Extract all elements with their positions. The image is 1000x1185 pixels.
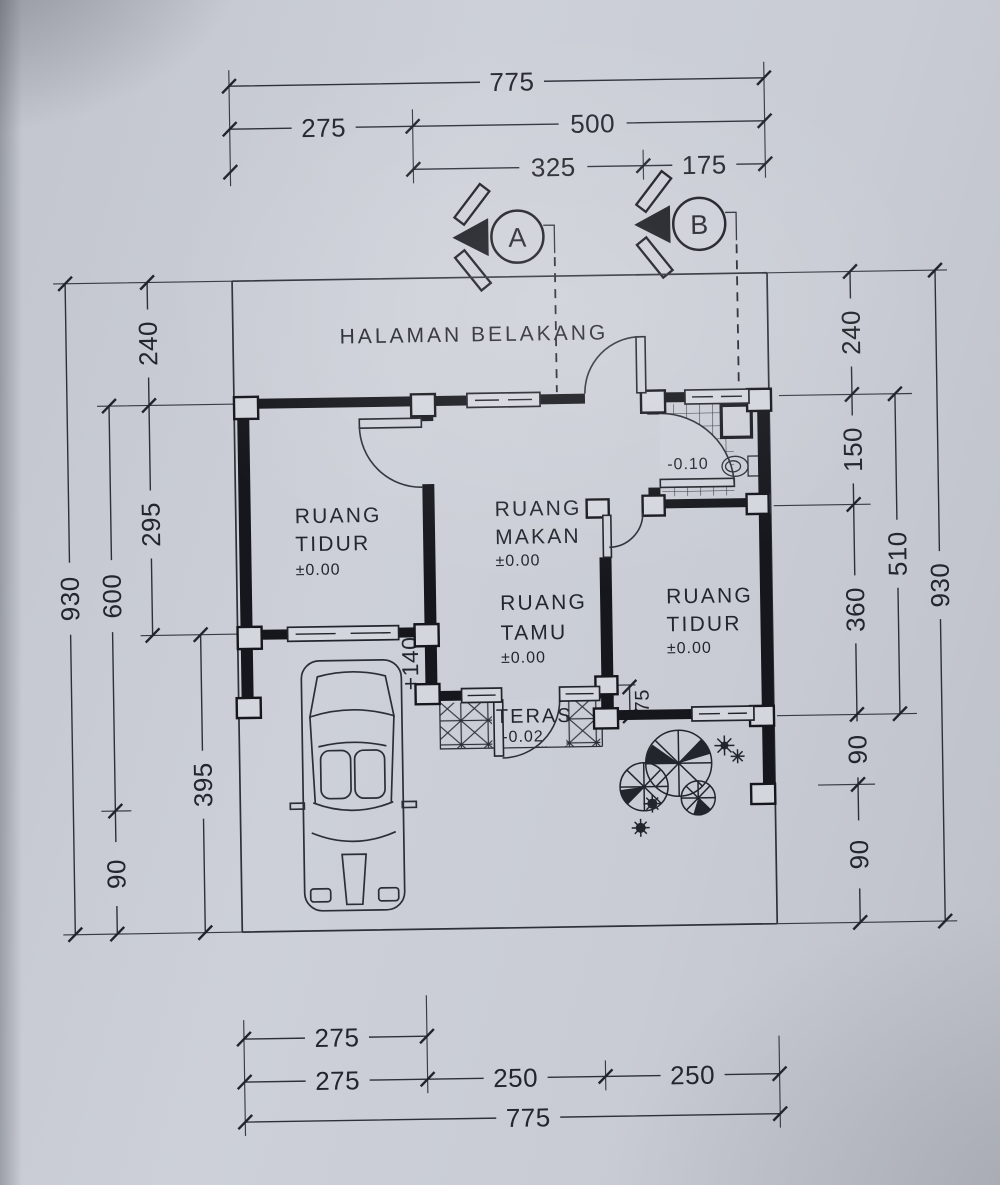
backyard-label: HALAMAN BELAKANG bbox=[339, 321, 608, 348]
floor-plan-drawing: 775 275 500 325 175 275 275 250 250 775 … bbox=[0, 0, 1000, 1185]
dim-bottom-right: 250 bbox=[670, 1060, 715, 1091]
dim-right-lower: 90 bbox=[842, 734, 872, 764]
section-marker-a: A bbox=[452, 183, 557, 394]
dining-level: ±0.00 bbox=[495, 552, 540, 570]
floor-plan-scan: 775 275 500 325 175 275 275 250 250 775 … bbox=[0, 0, 1000, 1185]
dim-top-left: 275 bbox=[301, 112, 346, 143]
plant-symbol bbox=[619, 729, 746, 837]
dim-top-total: 775 bbox=[489, 66, 534, 97]
bedroom-right-door-arc bbox=[609, 513, 644, 548]
living-name-1: RUANG bbox=[500, 591, 587, 615]
dim-right-outer: 930 bbox=[925, 562, 956, 607]
living-name-2: TAMU bbox=[500, 621, 567, 645]
bedroom-right-name-2: TIDUR bbox=[666, 612, 742, 636]
dim-right-upper: 150 bbox=[837, 427, 868, 472]
dim-left-bottom: 395 bbox=[188, 762, 219, 807]
dim-top-right: 500 bbox=[570, 108, 615, 139]
dim-top-end: 175 bbox=[682, 149, 727, 180]
bedroom-left-door-arc bbox=[359, 425, 422, 488]
dim-bottom-left: 275 bbox=[315, 1065, 360, 1096]
bedroom-right-name-1: RUANG bbox=[666, 584, 753, 608]
section-b-label: B bbox=[690, 210, 708, 240]
car-top-view bbox=[288, 659, 418, 911]
bedroom-right-door-leaf bbox=[603, 515, 612, 557]
dim-right-bottom: 90 bbox=[844, 839, 874, 869]
terrace-floor: TERAS -0.02 bbox=[440, 698, 603, 759]
dim-left-mid-lower: 90 bbox=[101, 859, 131, 889]
dim-bottom-mid: 250 bbox=[493, 1062, 538, 1093]
living-level: ±0.00 bbox=[501, 649, 546, 667]
dining-name-1: RUANG bbox=[495, 497, 582, 521]
bathroom-level: -0.10 bbox=[667, 456, 709, 474]
dining-name-2: MAKAN bbox=[495, 525, 581, 549]
dim-left-middle: 295 bbox=[136, 502, 167, 547]
dim-right-top: 240 bbox=[836, 310, 867, 355]
bedroom-left-name-2: TIDUR bbox=[295, 532, 371, 556]
section-a-label: A bbox=[508, 223, 526, 253]
back-door-arc bbox=[584, 337, 641, 394]
dim-left-top: 240 bbox=[133, 321, 164, 366]
terrace-name: TERAS bbox=[496, 705, 573, 728]
section-marker-b: B bbox=[633, 170, 738, 389]
dim-teras-gap: 75 bbox=[632, 689, 654, 713]
bedroom-left-name-1: RUANG bbox=[295, 504, 382, 528]
terrace-level: -0.02 bbox=[502, 728, 544, 746]
dim-left-mid-upper: 600 bbox=[97, 573, 128, 618]
bathroom-floor: -0.10 bbox=[659, 403, 759, 497]
bedroom-left-door-leaf bbox=[359, 418, 421, 428]
dim-right-mid: 510 bbox=[882, 531, 913, 576]
bedroom-right-level: ±0.00 bbox=[667, 640, 712, 658]
dim-left-outer: 930 bbox=[55, 576, 86, 621]
dim-bottom-total: 775 bbox=[506, 1102, 551, 1133]
dim-bottom-row1: 275 bbox=[314, 1022, 359, 1053]
bedroom-left-level: ±0.00 bbox=[295, 562, 340, 580]
back-door-leaf bbox=[636, 337, 646, 393]
dim-right-middle: 360 bbox=[840, 587, 871, 632]
dim-top-mid: 325 bbox=[531, 152, 576, 183]
